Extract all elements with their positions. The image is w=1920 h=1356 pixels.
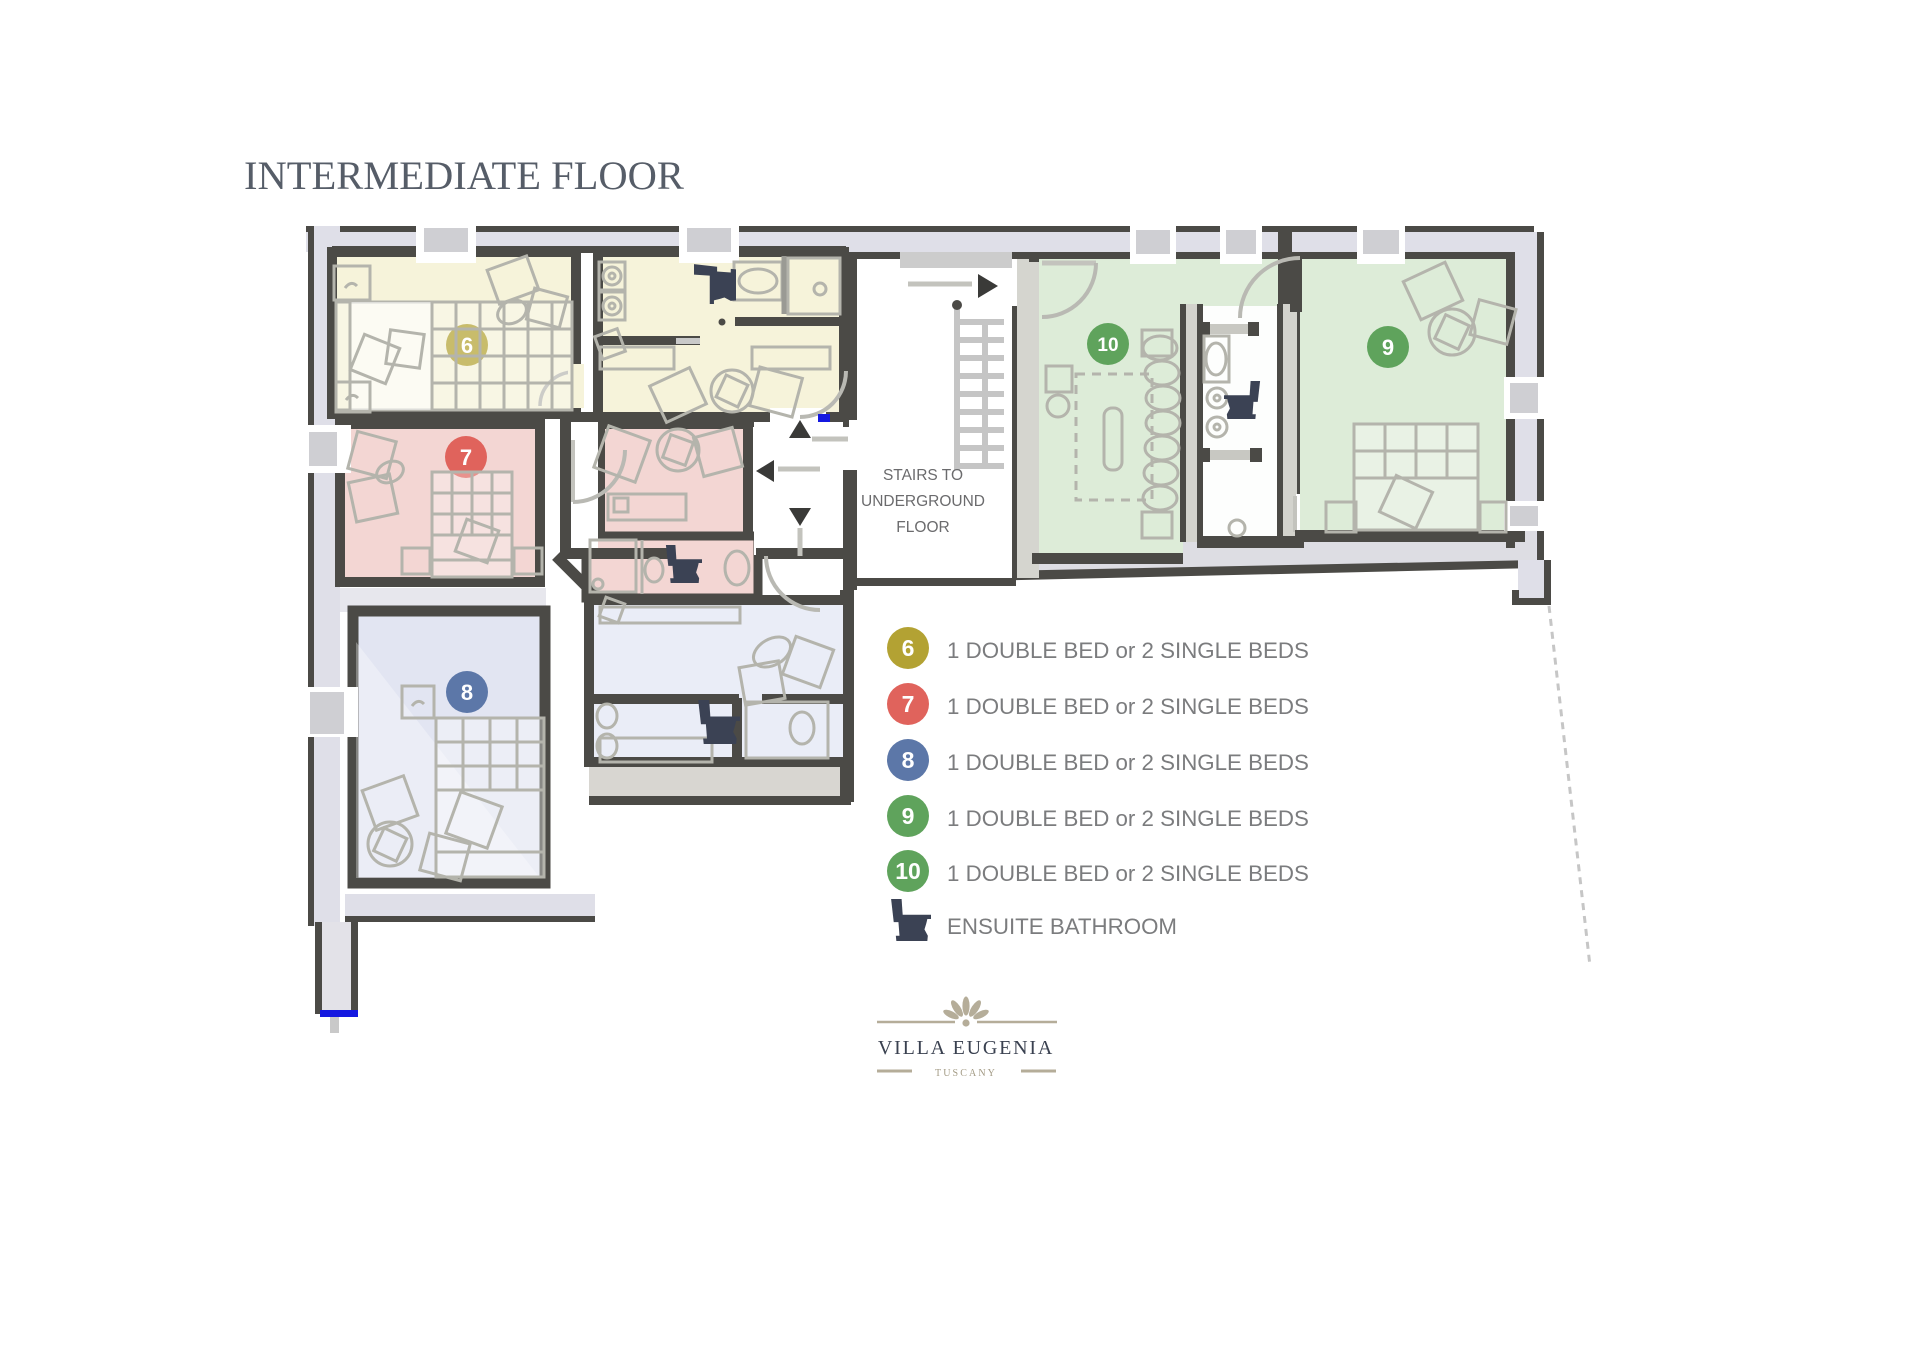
svg-text:1 DOUBLE BED or 2 SINGLE BEDS: 1 DOUBLE BED or 2 SINGLE BEDS — [947, 638, 1309, 663]
svg-text:1 DOUBLE BED or 2 SINGLE BEDS: 1 DOUBLE BED or 2 SINGLE BEDS — [947, 806, 1309, 831]
svg-text:7: 7 — [460, 445, 472, 470]
svg-text:FLOOR: FLOOR — [896, 519, 949, 536]
svg-text:1 DOUBLE BED or 2 SINGLE BEDS: 1 DOUBLE BED or 2 SINGLE BEDS — [947, 861, 1309, 886]
svg-text:10: 10 — [1097, 335, 1118, 356]
svg-text:UNDERGROUND: UNDERGROUND — [861, 493, 985, 510]
svg-text:7: 7 — [902, 691, 915, 717]
svg-text:1 DOUBLE BED or 2 SINGLE BEDS: 1 DOUBLE BED or 2 SINGLE BEDS — [947, 694, 1309, 719]
svg-text:9: 9 — [1382, 335, 1394, 360]
svg-text:10: 10 — [895, 858, 921, 884]
svg-text:STAIRS TO: STAIRS TO — [883, 467, 963, 484]
svg-text:8: 8 — [902, 747, 915, 773]
svg-text:INTERMEDIATE FLOOR: INTERMEDIATE FLOOR — [244, 153, 684, 198]
svg-text:6: 6 — [902, 635, 915, 661]
svg-text:TUSCANY: TUSCANY — [935, 1068, 997, 1079]
svg-text:1 DOUBLE BED or 2 SINGLE BEDS: 1 DOUBLE BED or 2 SINGLE BEDS — [947, 750, 1309, 775]
svg-text:9: 9 — [902, 803, 915, 829]
svg-text:ENSUITE BATHROOM: ENSUITE BATHROOM — [947, 914, 1177, 939]
svg-text:VILLA EUGENIA: VILLA EUGENIA — [878, 1037, 1054, 1059]
svg-text:8: 8 — [461, 680, 473, 705]
